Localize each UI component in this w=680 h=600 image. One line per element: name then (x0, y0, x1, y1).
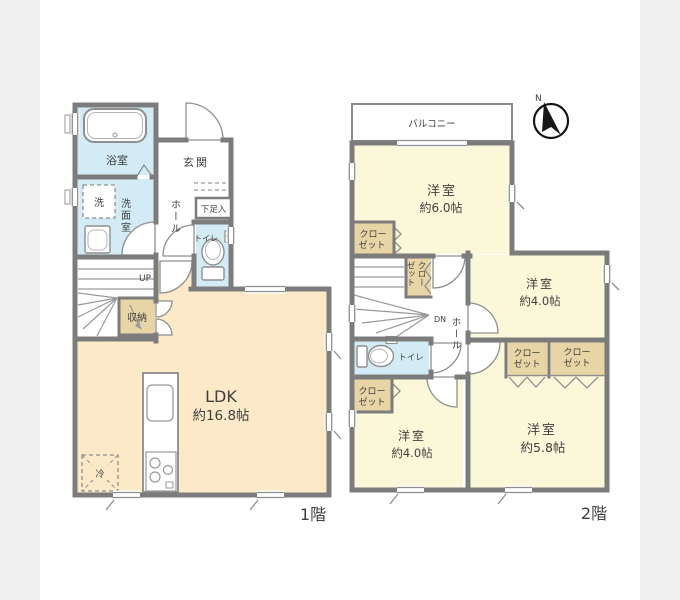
room-label-hall-1f: ホール (169, 199, 181, 235)
room-ldk-upper (192, 291, 327, 341)
closet-b-label-line1: クロー (563, 347, 590, 358)
floor2-plan: N バルコニー 洋室 約6.0帖 洋室 約4.0帖 洋室 約4.0帖 洋室 約5… (348, 94, 620, 523)
wash-basin (85, 226, 110, 253)
stairs-dn-label: DN (434, 315, 446, 324)
closet-a2-label-line2: ゼット (513, 358, 540, 370)
room-label-toilet-2f: トイレ (398, 353, 424, 363)
room-label-ldk-size: 約16.8帖 (192, 408, 249, 424)
room-label-storage: 収納 (127, 311, 147, 324)
bedroom-c-name: 洋室 (398, 428, 426, 443)
room-label-toilet-1f: トイレ (194, 234, 218, 243)
floor2-label: 2階 (581, 504, 607, 523)
compass-north-icon: N (534, 94, 568, 138)
floor1-plan: 浴室 洗 洗面室 玄関 ホール 下足入 トイレ UP 収納 LDK 約16.8帖… (65, 103, 341, 524)
bedroom-a-size: 約6.0帖 (419, 200, 462, 215)
room-label-ldk: LDK (205, 387, 237, 406)
room-label-hall-2f: ホール (450, 317, 462, 352)
closet-stair-label-line1: クロー (416, 261, 426, 287)
closet-a1-label-line2: ゼット (358, 239, 385, 251)
closet-b-label-line2: ゼット (563, 357, 590, 369)
closet-c-label-line1: クロー (358, 386, 385, 397)
bedroom-b-size: 約4.0帖 (519, 294, 560, 308)
floorplan-page: 浴室 洗 洗面室 玄関 ホール 下足入 トイレ UP 収納 LDK 約16.8帖… (0, 0, 680, 600)
compass-north-label: N (535, 94, 542, 104)
room-label-bath: 浴室 (106, 153, 128, 167)
floorplan-drawing: 浴室 洗 洗面室 玄関 ホール 下足入 トイレ UP 収納 LDK 約16.8帖… (0, 0, 680, 600)
closet-a1-label-line1: クロー (359, 229, 386, 240)
room-label-shoe-cabinet: 下足入 (201, 205, 227, 215)
room-label-washroom: 洗面室 (119, 198, 131, 234)
bathtub (84, 109, 146, 142)
room-label-entrance: 玄関 (183, 155, 209, 169)
bedroom-c-size: 約4.0帖 (391, 446, 432, 460)
room-label-washer: 洗 (94, 197, 104, 209)
fridge-label: 冷 (95, 468, 104, 480)
entrance-door (186, 103, 223, 140)
bedroom-d-name: 洋室 (527, 422, 557, 438)
kitchen-counter (143, 373, 178, 492)
bedroom-a-door (433, 256, 465, 288)
balcony-label: バルコニー (408, 119, 455, 130)
bedroom-a-name: 洋室 (427, 183, 457, 199)
floor1-label: 1階 (300, 505, 326, 524)
bedroom-b-name: 洋室 (526, 276, 554, 291)
closet-a2-label-line1: クロー (513, 348, 540, 359)
closet-c-label-line2: ゼット (358, 396, 385, 408)
stairs-up-label: UP (139, 274, 152, 284)
closet-stair-label-line2: ゼット (405, 261, 415, 287)
entrance-step-lines (194, 183, 231, 190)
bedroom-d-size: 約5.8帖 (521, 440, 566, 455)
